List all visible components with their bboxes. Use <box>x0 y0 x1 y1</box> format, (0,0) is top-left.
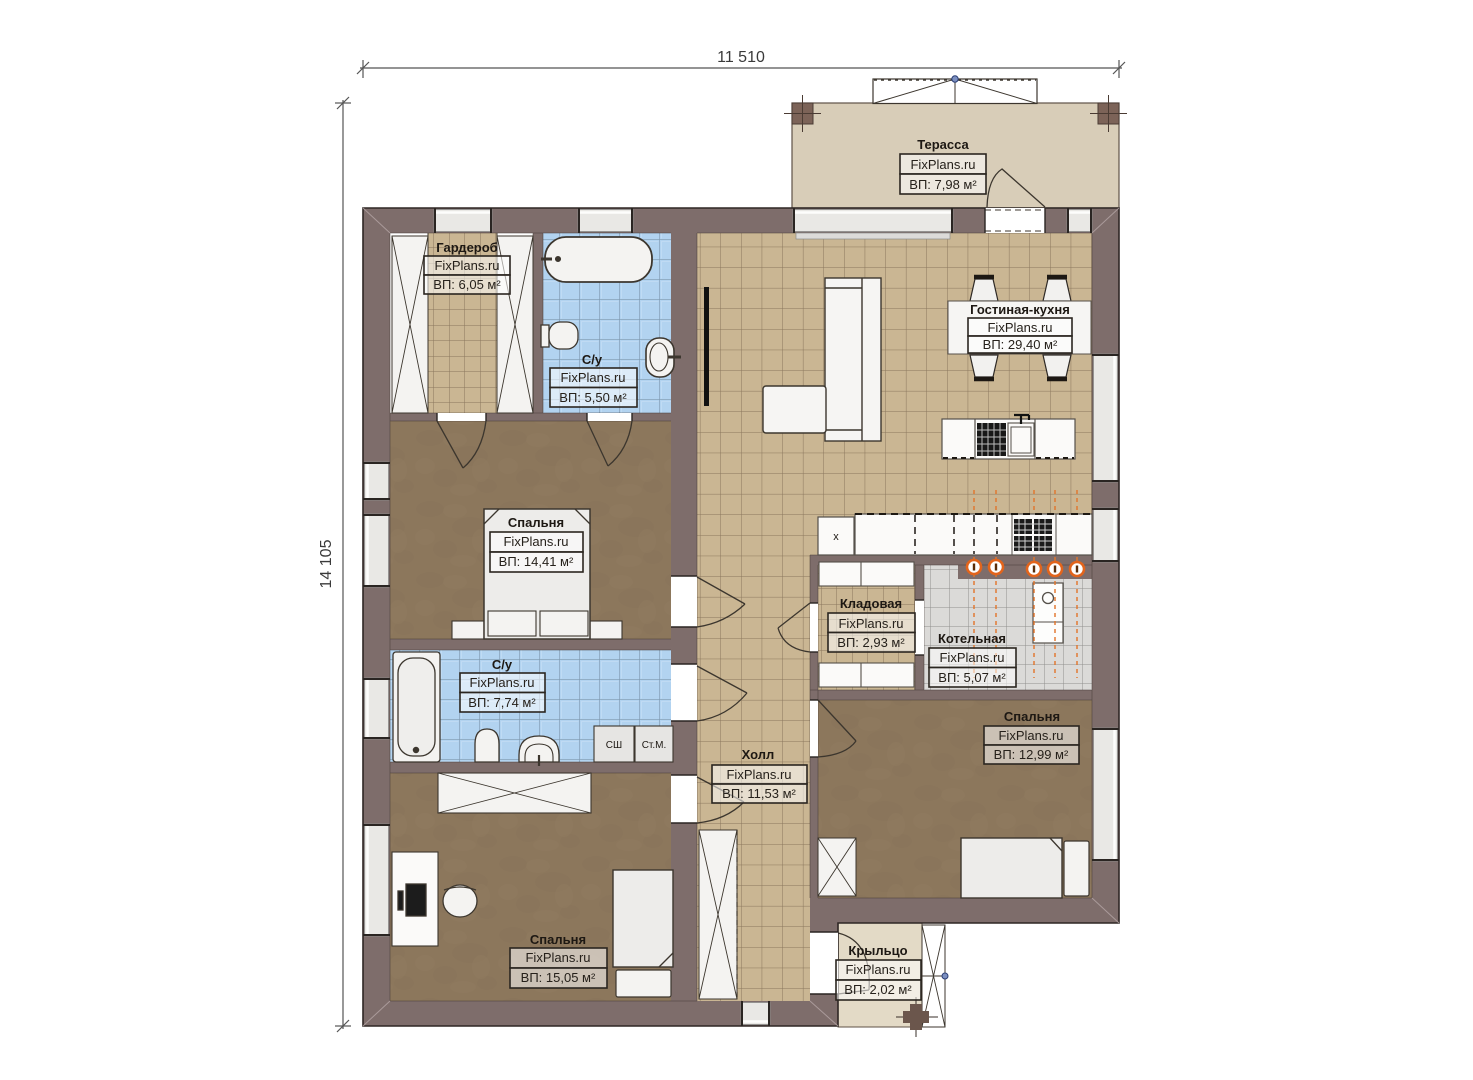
svg-text:ВП: 5,50 м²: ВП: 5,50 м² <box>559 390 627 405</box>
svg-text:ВП: 11,53 м²: ВП: 11,53 м² <box>722 786 796 801</box>
svg-text:С/у: С/у <box>582 352 603 367</box>
svg-text:11 510: 11 510 <box>717 49 765 66</box>
svg-text:ВП: 2,93 м²: ВП: 2,93 м² <box>837 635 905 650</box>
svg-text:Гардероб: Гардероб <box>436 240 497 255</box>
svg-text:Ст.М.: Ст.М. <box>642 740 667 751</box>
svg-text:ВП: 15,05 м²: ВП: 15,05 м² <box>521 970 596 985</box>
svg-text:ВП: 2,02 м²: ВП: 2,02 м² <box>844 982 912 997</box>
svg-text:FixPlans.ru: FixPlans.ru <box>434 258 499 273</box>
svg-text:FixPlans.ru: FixPlans.ru <box>503 534 568 549</box>
svg-text:ВП: 29,40 м²: ВП: 29,40 м² <box>983 337 1058 352</box>
svg-text:ВП: 14,41 м²: ВП: 14,41 м² <box>499 554 574 569</box>
svg-text:СШ: СШ <box>606 740 622 751</box>
svg-text:Котельная: Котельная <box>938 631 1006 646</box>
svg-text:ВП: 7,74 м²: ВП: 7,74 м² <box>468 695 536 710</box>
svg-text:ВП: 6,05 м²: ВП: 6,05 м² <box>433 277 501 292</box>
svg-text:FixPlans.ru: FixPlans.ru <box>845 962 910 977</box>
svg-text:ВП: 12,99 м²: ВП: 12,99 м² <box>994 747 1069 762</box>
svg-text:Холл: Холл <box>742 747 775 762</box>
svg-text:Крыльцо: Крыльцо <box>848 943 907 958</box>
svg-text:FixPlans.ru: FixPlans.ru <box>560 370 625 385</box>
svg-text:FixPlans.ru: FixPlans.ru <box>726 767 791 782</box>
svg-text:FixPlans.ru: FixPlans.ru <box>838 616 903 631</box>
svg-text:С/у: С/у <box>492 657 513 672</box>
svg-text:Кладовая: Кладовая <box>840 596 902 611</box>
svg-text:x: x <box>833 531 839 543</box>
svg-text:Спальня: Спальня <box>1004 709 1060 724</box>
svg-text:Гостиная-кухня: Гостиная-кухня <box>970 302 1070 317</box>
svg-text:FixPlans.ru: FixPlans.ru <box>525 950 590 965</box>
svg-text:FixPlans.ru: FixPlans.ru <box>998 728 1063 743</box>
svg-text:FixPlans.ru: FixPlans.ru <box>939 650 1004 665</box>
svg-text:Спальня: Спальня <box>530 932 586 947</box>
svg-text:14 105: 14 105 <box>318 539 335 588</box>
svg-text:FixPlans.ru: FixPlans.ru <box>469 675 534 690</box>
svg-text:ВП: 5,07 м²: ВП: 5,07 м² <box>938 670 1006 685</box>
svg-text:ВП: 7,98 м²: ВП: 7,98 м² <box>909 177 977 192</box>
svg-text:Терасса: Терасса <box>917 137 969 152</box>
svg-text:FixPlans.ru: FixPlans.ru <box>910 157 975 172</box>
svg-text:FixPlans.ru: FixPlans.ru <box>987 320 1052 335</box>
svg-text:Спальня: Спальня <box>508 515 564 530</box>
